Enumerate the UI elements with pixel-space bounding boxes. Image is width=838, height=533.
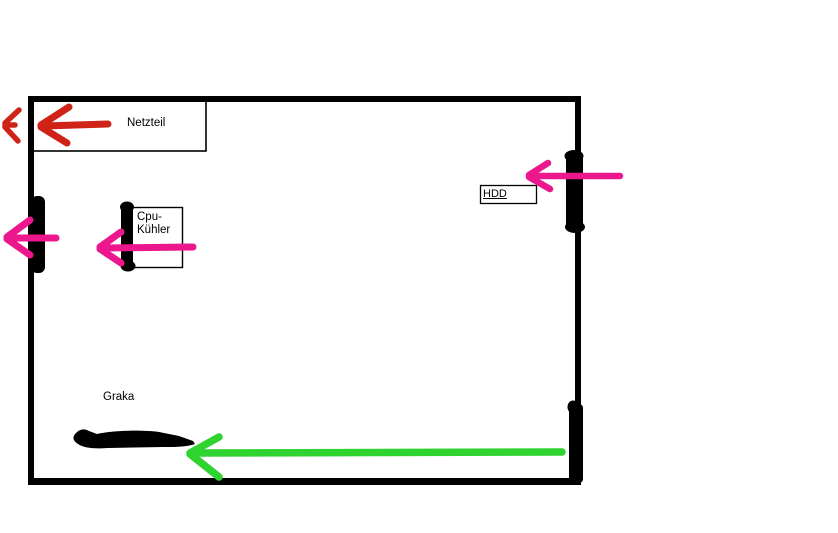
netzteil-label: Netzteil bbox=[127, 117, 165, 130]
case-left-wall bbox=[28, 96, 34, 485]
hdd-fan bbox=[565, 150, 586, 233]
case-bottom-wall bbox=[28, 478, 581, 485]
gpu-bar bbox=[73, 429, 195, 448]
rear-fan bbox=[568, 401, 584, 484]
graka-label: Graka bbox=[103, 391, 134, 404]
hdd-label: HDD bbox=[483, 188, 507, 201]
cpu-cooler-label: Cpu- Kühler bbox=[137, 211, 170, 237]
gpu-intake-arrow bbox=[190, 437, 562, 477]
psu-exhaust-arrow bbox=[41, 107, 108, 143]
case-outline bbox=[28, 96, 581, 485]
case-airflow-diagram bbox=[0, 0, 838, 533]
case-exhaust-chevron-icon bbox=[5, 110, 19, 141]
paint-canvas: Netzteil Cpu- Kühler HDD Graka bbox=[0, 0, 838, 533]
